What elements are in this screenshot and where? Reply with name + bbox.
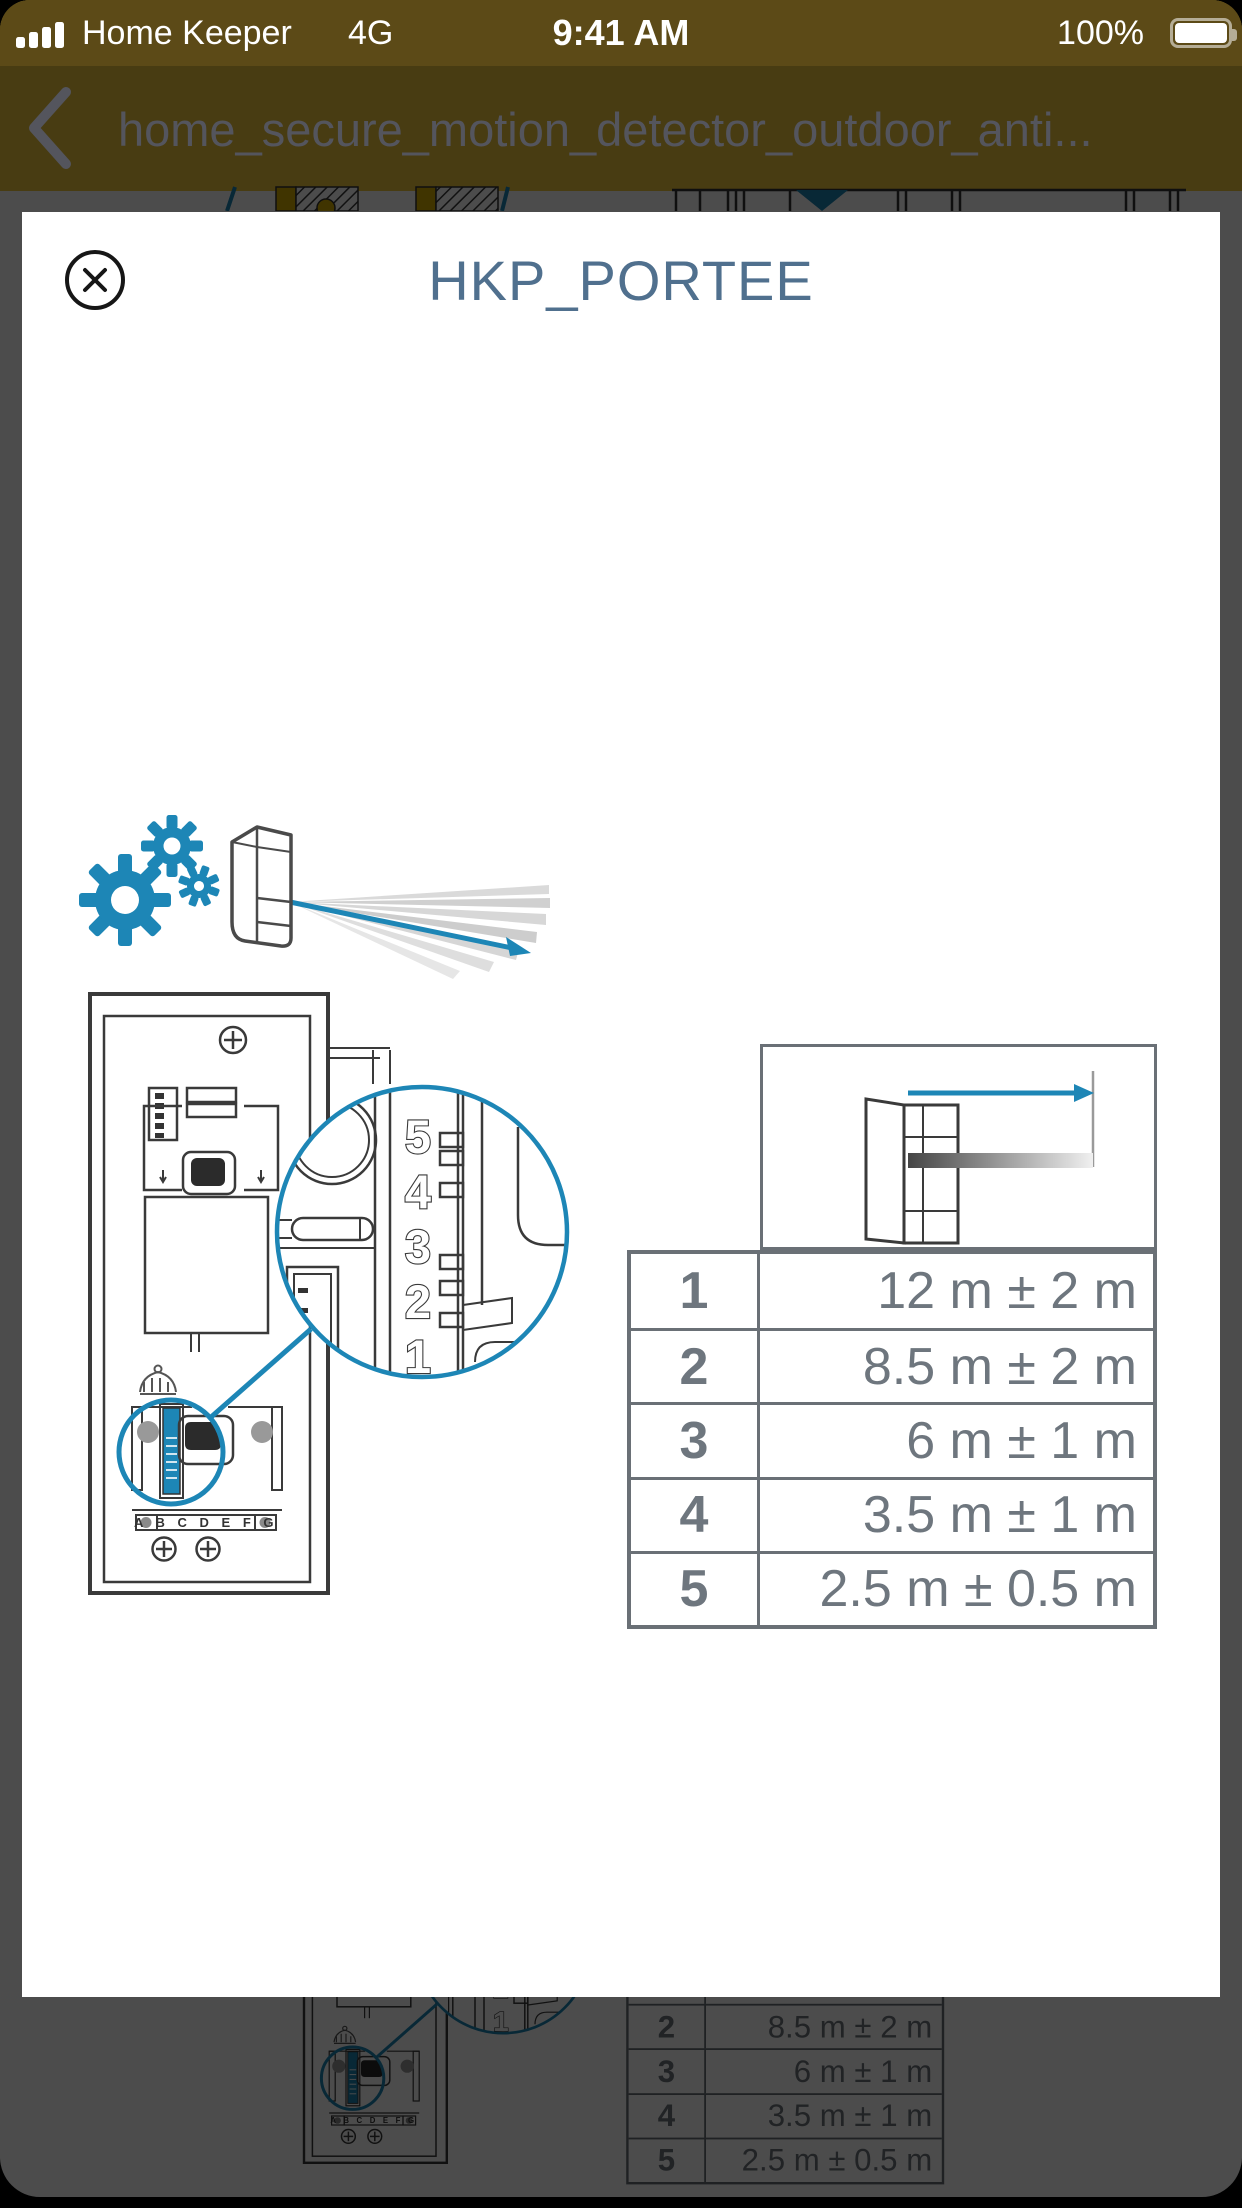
battery-icon (1170, 18, 1232, 48)
clock-label: 9:41 AM (0, 12, 1242, 54)
nav-bar: home_secure_motion_detector_outdoor_anti… (0, 66, 1242, 191)
phone-screen: A B C D E F G (0, 0, 1242, 2208)
modal-dialog (22, 212, 1220, 1997)
status-bar: Home Keeper 4G 9:41 AM 100% (0, 0, 1242, 66)
back-button[interactable] (26, 86, 74, 170)
battery-percent-label: 100% (1057, 14, 1144, 53)
modal-title: HKP_PORTEE (22, 248, 1220, 313)
chevron-left-icon (34, 92, 66, 164)
page-title: home_secure_motion_detector_outdoor_anti… (118, 102, 1228, 157)
